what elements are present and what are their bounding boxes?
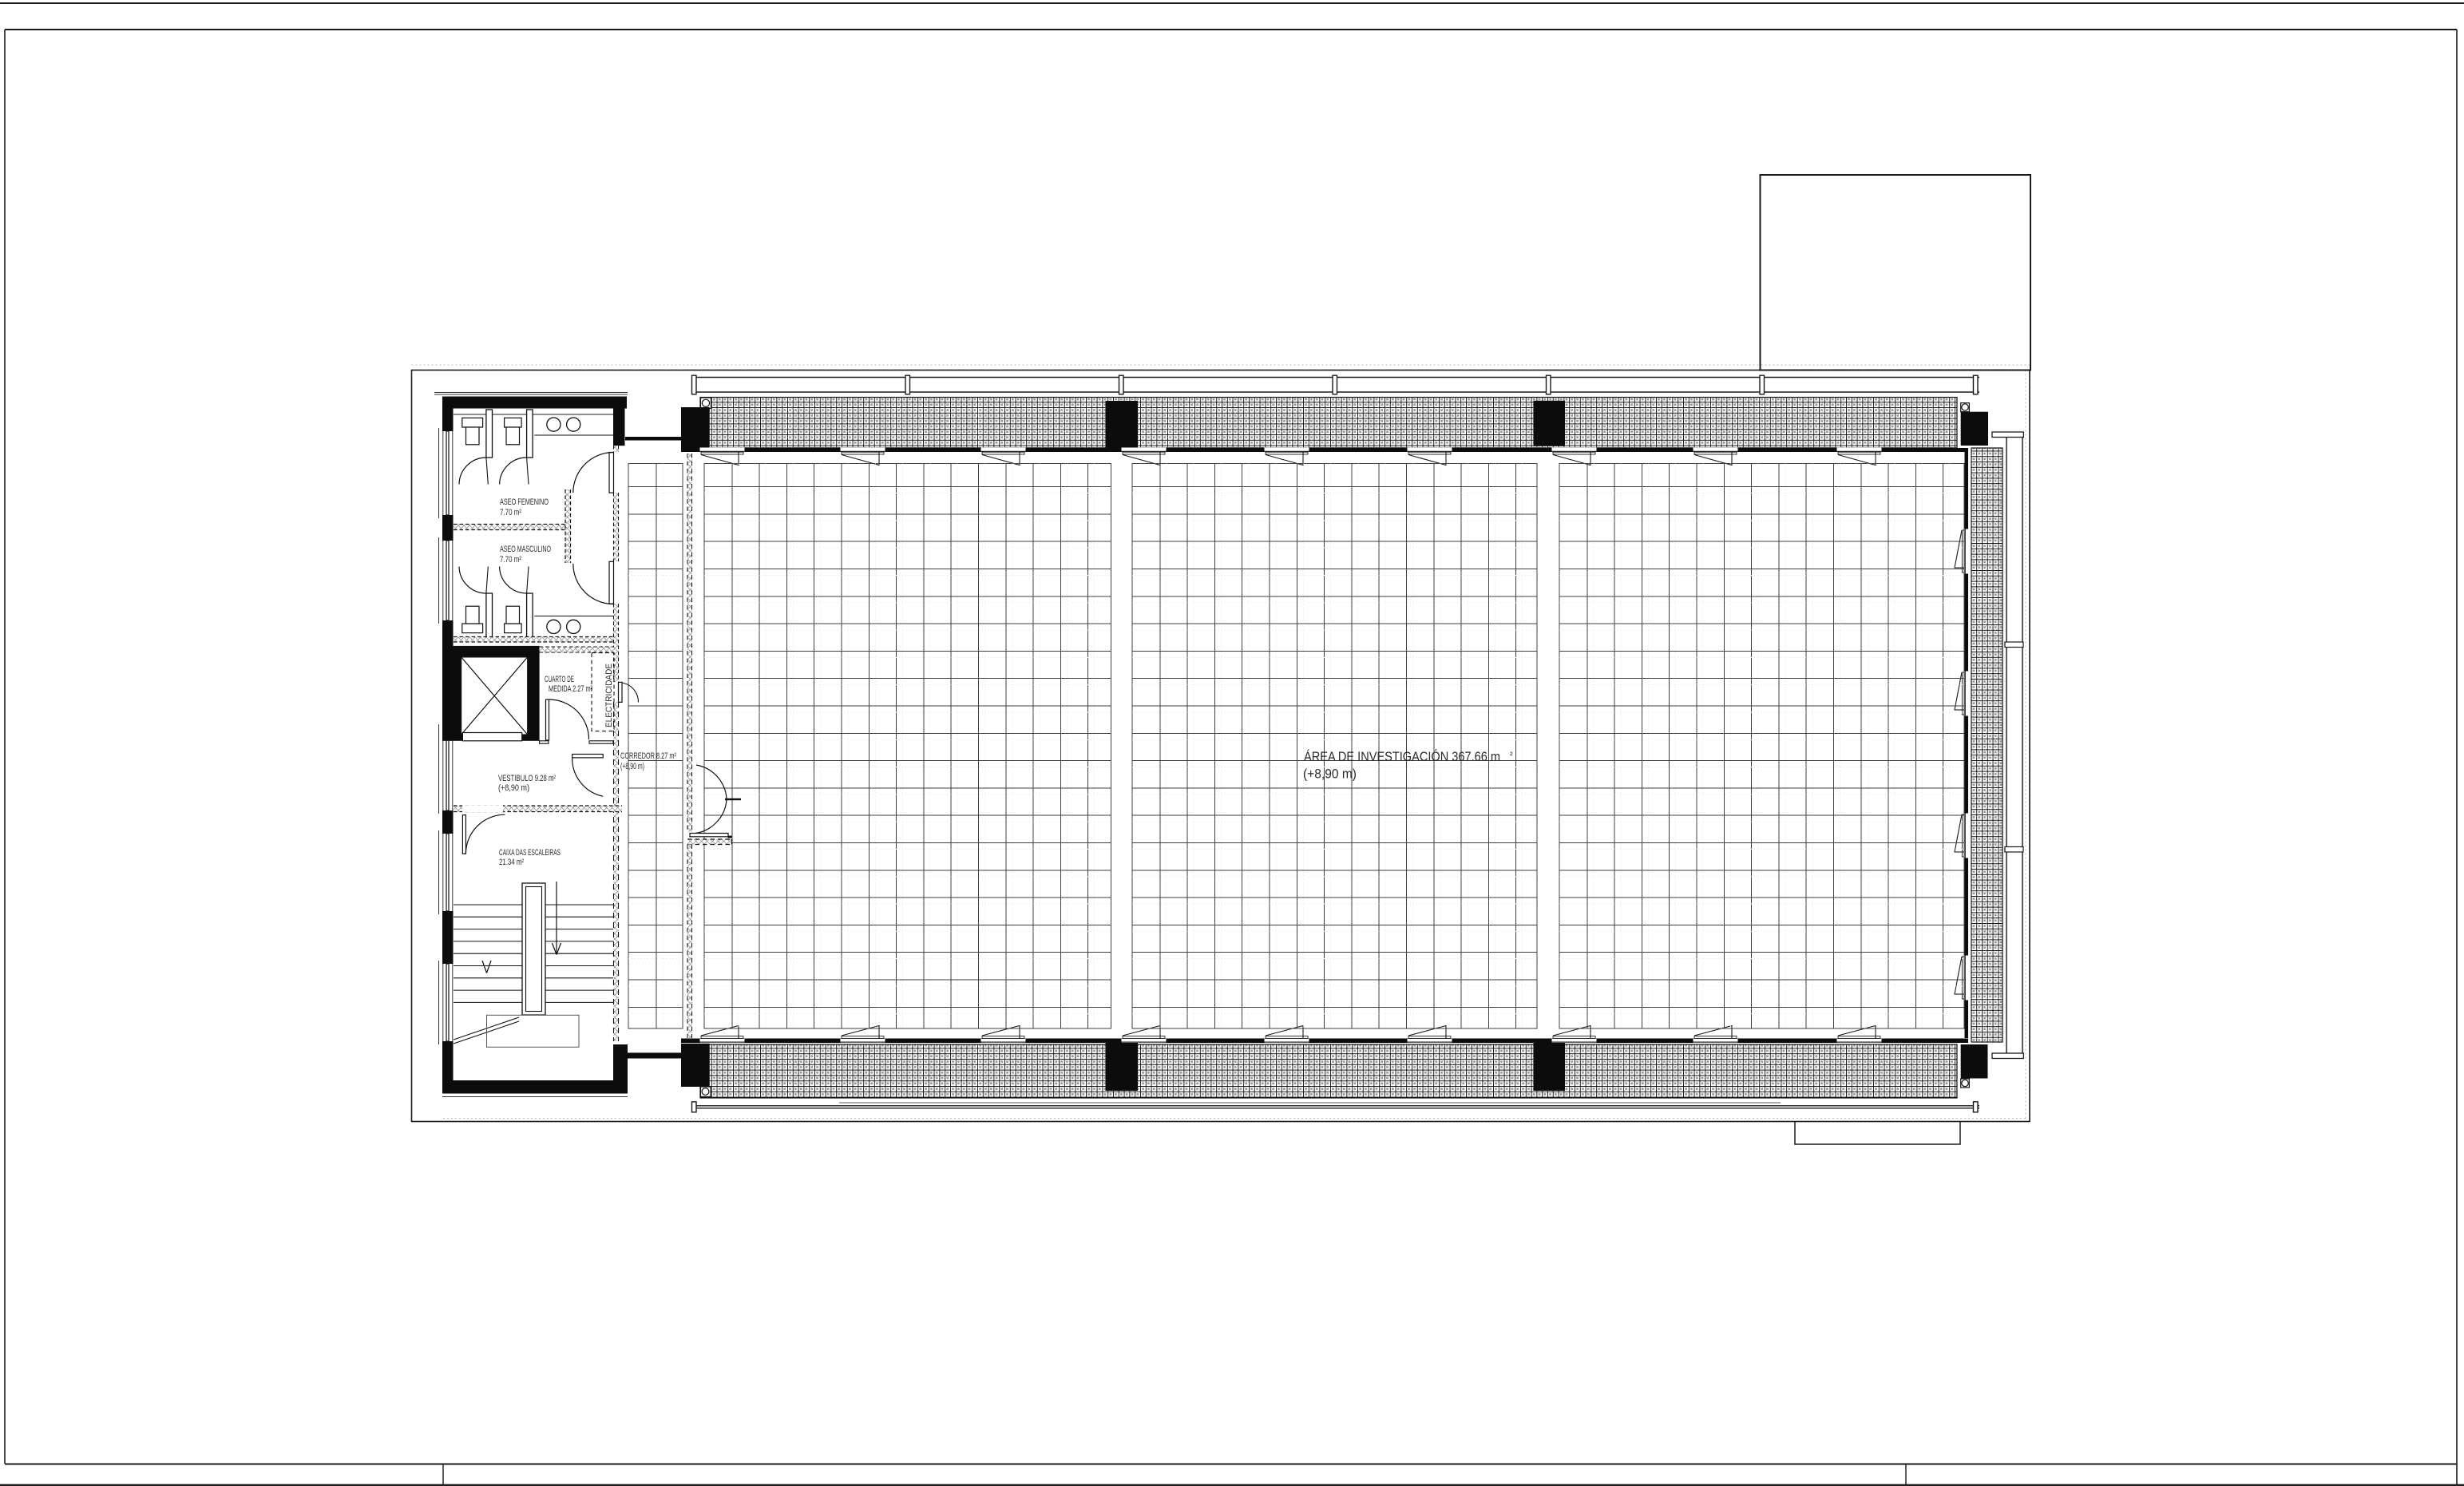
svg-text:CAIXA DAS ESCALEIRAS: CAIXA DAS ESCALEIRAS	[499, 848, 561, 858]
svg-text:ELECTRICIDADE: ELECTRICIDADE	[604, 664, 614, 727]
svg-text:CUARTO DE: CUARTO DE	[545, 675, 574, 684]
svg-text:ASEO FEMENINO: ASEO FEMENINO	[500, 497, 549, 507]
svg-text:MEDIDA 2.27 m²: MEDIDA 2.27 m²	[549, 684, 592, 694]
svg-text:CORREDOR 8.27 m²: CORREDOR 8.27 m²	[620, 751, 676, 761]
svg-text:²: ²	[1510, 751, 1513, 760]
svg-text:VESTIBULO 9.28 m²: VESTIBULO 9.28 m²	[498, 774, 556, 783]
svg-text:(+8,90 m): (+8,90 m)	[620, 762, 644, 771]
svg-text:(+8,90 m): (+8,90 m)	[498, 783, 529, 793]
svg-text:ÁREA DE INVESTIGACIÓN 367.66 m: ÁREA DE INVESTIGACIÓN 367.66 m	[1304, 749, 1500, 764]
svg-text:7.70 m²: 7.70 m²	[500, 508, 521, 517]
svg-text:(+8,90 m): (+8,90 m)	[1303, 767, 1357, 782]
svg-text:21.34 m²: 21.34 m²	[499, 858, 524, 867]
svg-text:ASEO MASCULINO: ASEO MASCULINO	[500, 545, 551, 554]
svg-text:7.70 m²: 7.70 m²	[500, 555, 521, 565]
